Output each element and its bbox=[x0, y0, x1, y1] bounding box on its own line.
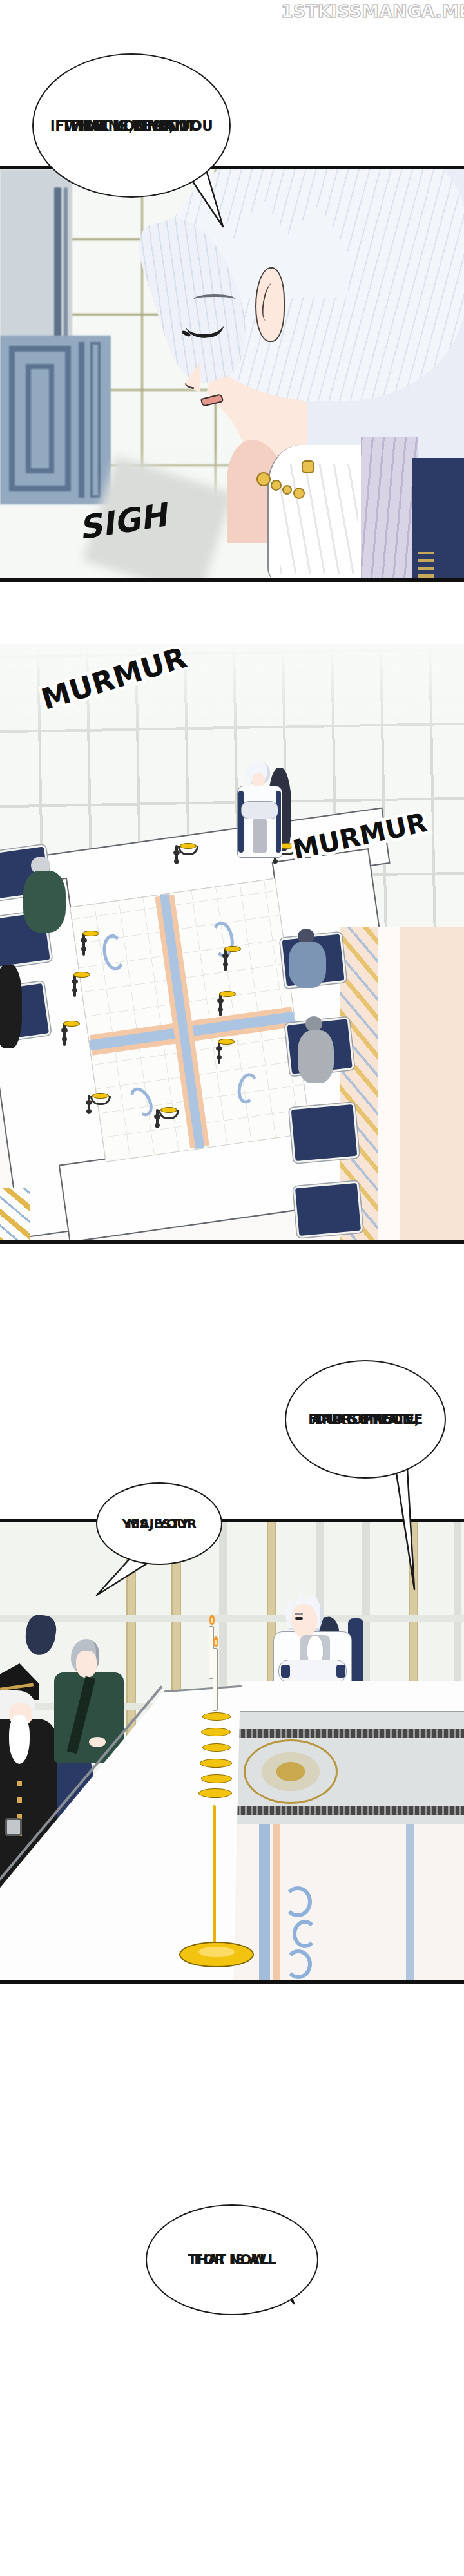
navy-coat bbox=[412, 458, 464, 582]
coat-lapel bbox=[238, 791, 244, 853]
gold-brooch bbox=[256, 472, 271, 486]
candle-flame bbox=[213, 1636, 218, 1647]
bubble-text-line: FOR NOW. bbox=[194, 2250, 269, 2269]
drip-tray bbox=[201, 1774, 232, 1783]
drip-tray bbox=[200, 1759, 232, 1768]
standing-emperor-face bbox=[252, 773, 265, 787]
drip-tray bbox=[202, 1712, 231, 1721]
gold-clasp bbox=[302, 460, 314, 473]
drip-tray bbox=[198, 1788, 232, 1798]
floor-scroll-ornament bbox=[209, 920, 236, 959]
floor-ornament-corner bbox=[0, 1188, 30, 1244]
gold-bead bbox=[293, 488, 305, 499]
floor-scroll-ornament bbox=[101, 933, 127, 972]
speech-bubble-yes-majesty: YES, YOUR MAJESTY. bbox=[96, 1482, 222, 1565]
bubble-text-line: WHAT YOU WANT. bbox=[64, 117, 198, 135]
speech-bubble-that-is-all: THAT IS ALL FOR NOW. bbox=[146, 2204, 318, 2315]
gold-bead bbox=[282, 485, 292, 495]
crossed-arms bbox=[241, 801, 278, 819]
gray-vest bbox=[253, 819, 267, 853]
panel-council-hall-overview bbox=[0, 644, 464, 1244]
drip-tray bbox=[202, 1743, 231, 1752]
blue-noble-body bbox=[289, 942, 326, 988]
speech-bubble-find-someone: FIND SOMEONE APPROPRIATE, DUKE EINSLE. bbox=[285, 1360, 446, 1479]
ear bbox=[255, 267, 285, 342]
candle bbox=[213, 1648, 218, 1711]
candle-flame bbox=[209, 1615, 215, 1625]
council-chair bbox=[293, 1181, 363, 1238]
floor-blue-band-horizontal bbox=[89, 1012, 295, 1050]
drip-tray bbox=[201, 1728, 231, 1736]
tall-candlestick bbox=[0, 1522, 464, 1984]
candlestick-base bbox=[179, 1942, 254, 1967]
site-watermark: 1STKISSMANGA.ME bbox=[281, 1, 464, 23]
coat-lapel bbox=[276, 791, 281, 853]
gold-bead bbox=[271, 480, 282, 491]
council-chair bbox=[289, 1103, 359, 1164]
inner-floor bbox=[70, 878, 311, 1162]
wax-stream bbox=[213, 1805, 216, 1948]
bubble-text-line: MAJESTY. bbox=[127, 1515, 191, 1533]
emperor-profile-character bbox=[0, 169, 464, 582]
manga-page: 1STKISSMANGA.ME bbox=[0, 0, 464, 2576]
floor-highlight bbox=[378, 927, 400, 1244]
panel-emperor-closeup bbox=[0, 166, 464, 582]
floor-scroll-ornament bbox=[235, 1071, 260, 1105]
eyebrow bbox=[193, 294, 236, 305]
gray-noble-head bbox=[305, 1016, 322, 1032]
nose-line bbox=[184, 381, 195, 389]
panel-table-conversation bbox=[0, 1519, 464, 1984]
floor-scroll-ornament bbox=[126, 1084, 157, 1120]
green-noble-body bbox=[23, 871, 66, 933]
gray-noble-body bbox=[298, 1030, 334, 1083]
speech-bubble-emperor: ...FINE, THEN. IF THAT IS WHAT YOU THINK… bbox=[32, 53, 231, 198]
lavender-collar bbox=[361, 437, 418, 582]
bubble-text-line: DUKE EINSLE. bbox=[314, 1410, 416, 1429]
tricorn-noble bbox=[0, 965, 22, 1048]
